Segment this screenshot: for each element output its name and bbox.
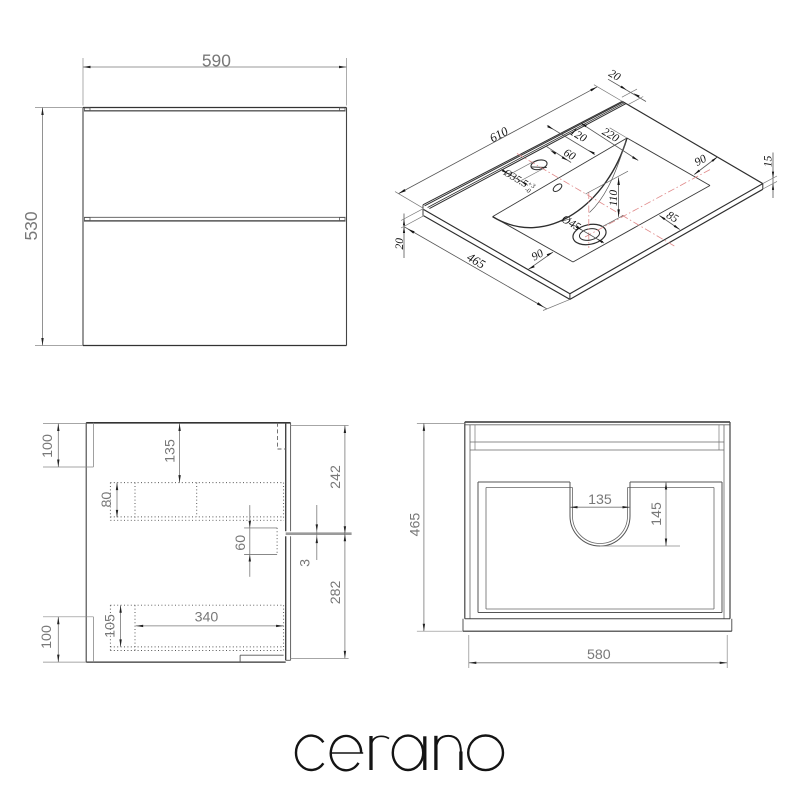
svg-text:135: 135 — [162, 439, 178, 463]
svg-text:60: 60 — [233, 535, 249, 551]
svg-text:135: 135 — [588, 492, 612, 508]
svg-text:580: 580 — [587, 647, 611, 663]
svg-text:3: 3 — [297, 559, 313, 567]
svg-text:105: 105 — [102, 614, 118, 638]
svg-text:100: 100 — [39, 625, 55, 649]
svg-text:100: 100 — [40, 434, 56, 458]
svg-text:145: 145 — [649, 502, 665, 526]
svg-text:530: 530 — [21, 211, 41, 240]
svg-text:465: 465 — [408, 513, 424, 537]
svg-text:110: 110 — [608, 190, 620, 207]
svg-text:242: 242 — [328, 465, 344, 489]
svg-text:282: 282 — [328, 580, 344, 604]
svg-text:590: 590 — [202, 51, 231, 71]
svg-text:20: 20 — [394, 238, 406, 250]
svg-text:340: 340 — [195, 610, 219, 626]
svg-text:80: 80 — [99, 492, 115, 508]
svg-text:15: 15 — [763, 155, 775, 167]
